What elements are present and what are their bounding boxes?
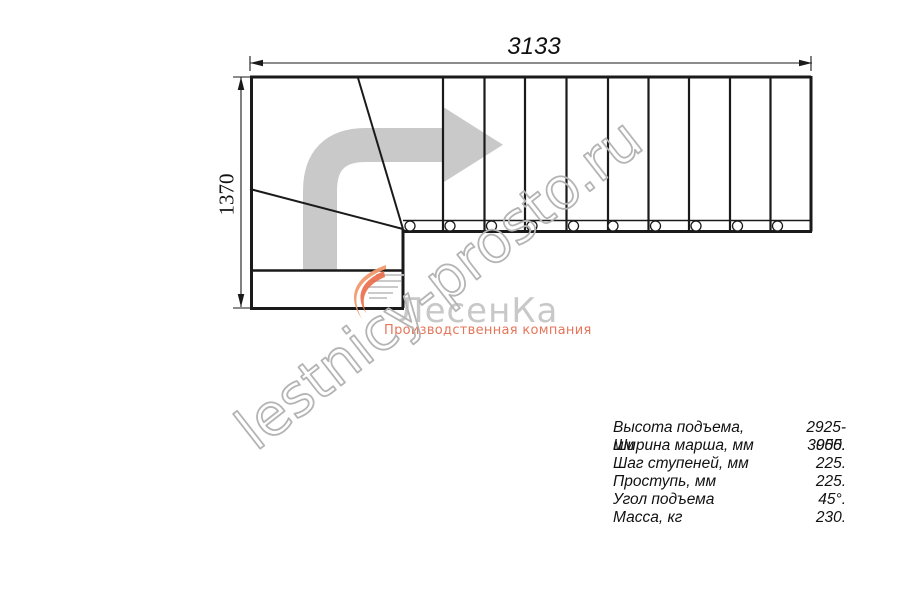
direction-arrow (320, 108, 503, 272)
spec-label: Ширина марша, мм (613, 437, 754, 455)
spec-value: 230. (816, 509, 846, 527)
spec-value: 45°. (818, 491, 846, 509)
spec-value: 900. (816, 437, 846, 455)
logo-swirl-icon (354, 265, 404, 319)
tread-lines (443, 77, 771, 231)
height-dimension-label: 1370 (215, 155, 240, 235)
width-dimension-label: 3133 (496, 33, 572, 61)
baluster-circles (405, 221, 783, 231)
staircase-drawing-canvas: ЛесенКа Производственная компания lestni… (0, 0, 900, 600)
spec-row-angle: Угол подъема 45°. (613, 491, 846, 509)
spec-table: Высота подъема, мм 2925-3055. Ширина мар… (613, 419, 846, 527)
spec-value: 225. (816, 455, 846, 473)
spec-label: Масса, кг (613, 509, 682, 527)
spec-row-tread: Проступь, мм 225. (613, 473, 846, 491)
spec-row-step-pitch: Шаг ступеней, мм 225. (613, 455, 846, 473)
spec-label: Угол подъема (613, 491, 714, 509)
spec-label: Шаг ступеней, мм (613, 455, 749, 473)
spec-value: 2925-3055. (768, 419, 846, 437)
spec-label: Проступь, мм (613, 473, 716, 491)
logo-tagline-text: Производственная компания (384, 324, 592, 337)
spec-row-mass: Масса, кг 230. (613, 509, 846, 527)
spec-label: Высота подъема, мм (613, 419, 768, 437)
spec-row-height: Высота подъема, мм 2925-3055. (613, 419, 846, 437)
spec-value: 225. (816, 473, 846, 491)
